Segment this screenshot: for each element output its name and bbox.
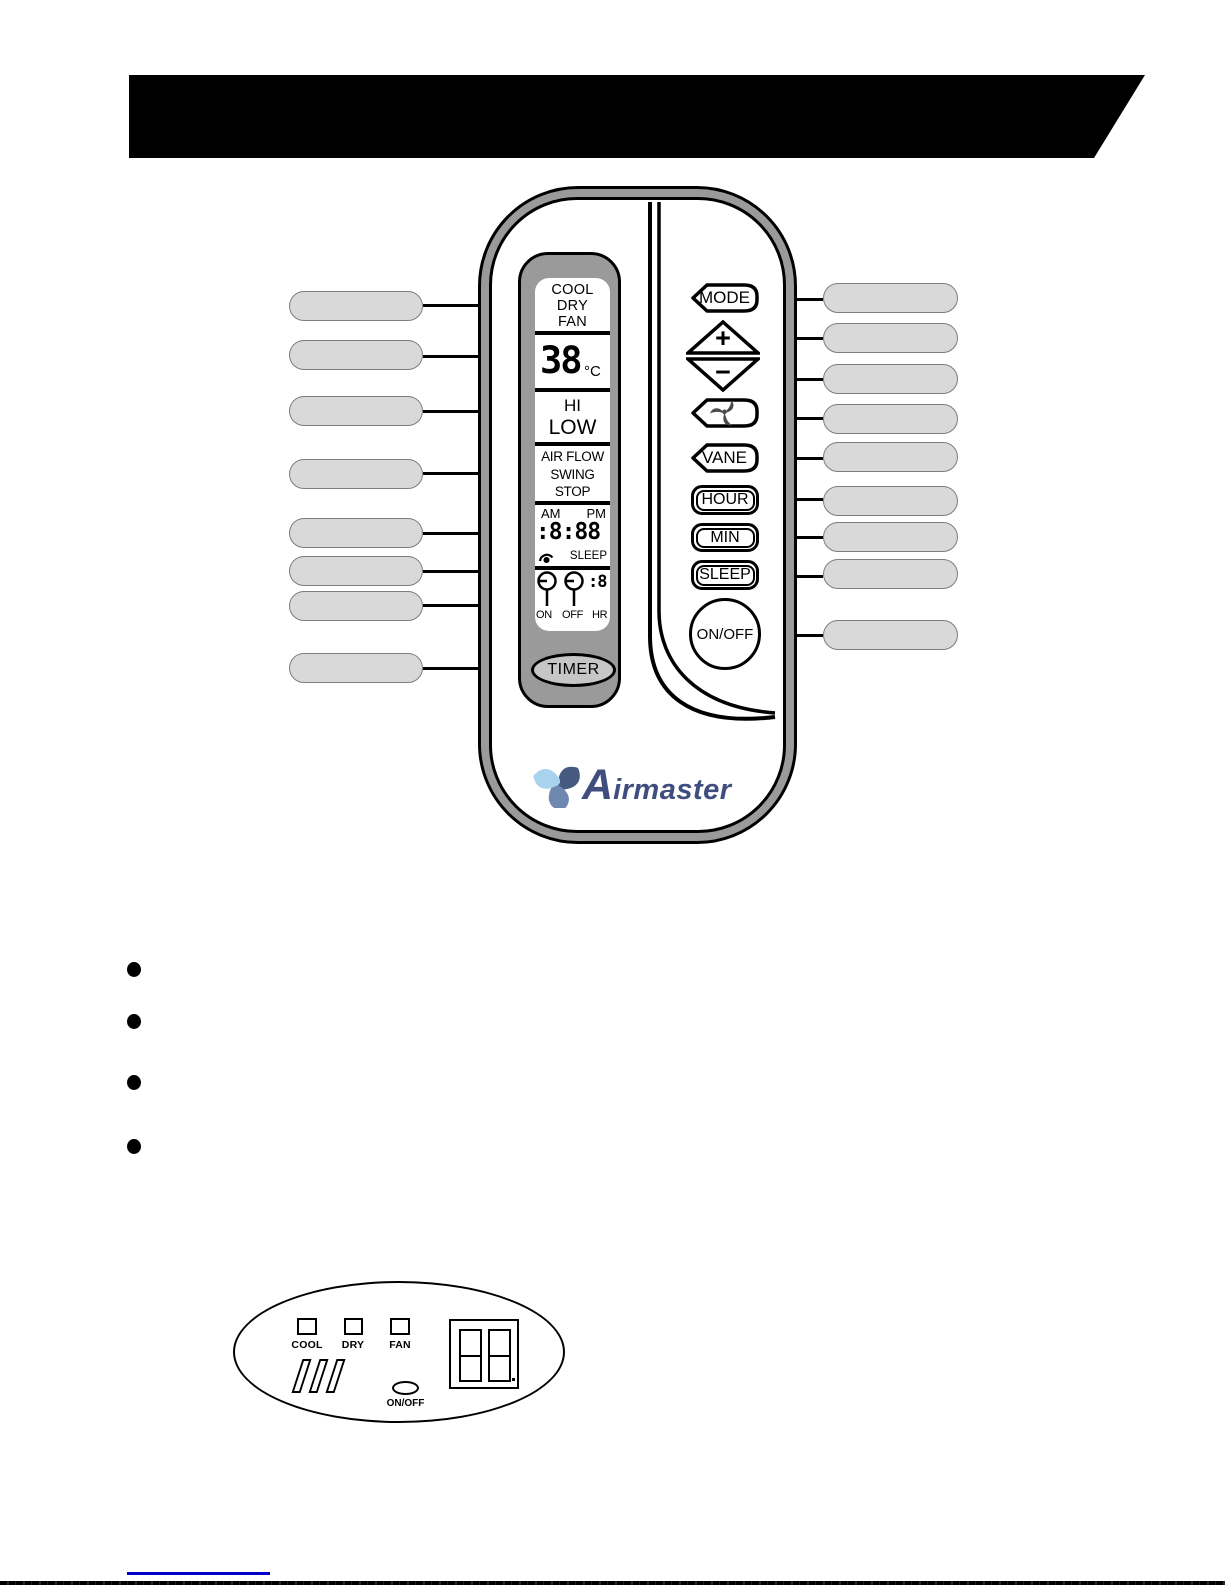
airmaster-swirl-icon (533, 762, 583, 808)
callout-box (289, 291, 423, 321)
temperature-value: 38 (540, 342, 581, 379)
logo-rest: irmaster (613, 774, 731, 806)
vane-button: VANE (690, 443, 759, 473)
callout-box (289, 591, 423, 621)
callout-line (797, 417, 823, 420)
title-banner (129, 75, 1145, 158)
callout-line (797, 536, 823, 539)
bullet-dot (127, 1075, 141, 1090)
vane-button-label: VANE (690, 443, 759, 473)
callout-line (423, 604, 478, 607)
airflow-label: AIR FLOW (535, 448, 610, 466)
bullet-dot (127, 1139, 141, 1154)
page-bottom-edge (0, 1581, 1225, 1585)
seven-segment-display (449, 1319, 519, 1389)
callout-line (423, 304, 478, 307)
hour-button-label: HOUR (696, 490, 755, 511)
remote-control-diagram: COOL DRY FAN 38 °C HI LOW AIR FLOW SWING… (478, 186, 797, 844)
footer-link-line (127, 1572, 270, 1575)
callout-box (289, 653, 423, 683)
panel-on-off-button (392, 1381, 419, 1395)
timer-hr-label: HR (592, 609, 607, 621)
lcd-fan-speed: HI LOW (535, 392, 610, 442)
fan-indicator-lamp (390, 1318, 410, 1335)
callout-line (797, 498, 823, 501)
callout-box (823, 559, 958, 589)
fan-speed-low: LOW (535, 416, 610, 440)
callout-box (823, 620, 958, 650)
temp-up-down-button: + − (686, 320, 760, 392)
fan-speed-hi: HI (535, 396, 610, 416)
indicator-panel-diagram: COOL DRY FAN ON/OFF (233, 1281, 565, 1423)
on-off-button-label: ON/OFF (697, 626, 754, 643)
callout-box (823, 404, 958, 434)
louver-slash (325, 1359, 345, 1393)
callout-box (823, 364, 958, 394)
min-button: MIN (691, 523, 759, 552)
airflow-stop: STOP (535, 483, 610, 501)
callout-box (823, 323, 958, 353)
timer-off-label: OFF (562, 609, 583, 621)
callout-line (423, 667, 478, 670)
callout-box (823, 442, 958, 472)
louver-slash (291, 1359, 311, 1393)
timer-button: TIMER (531, 653, 616, 687)
lcd-divider (535, 442, 610, 446)
minus-button-label: − (686, 358, 760, 386)
timer-hour-digit: :8 (588, 572, 606, 592)
lcd-mode-dry: DRY (535, 298, 610, 314)
callout-line (797, 634, 823, 637)
clock-digits: :8:88 (535, 519, 601, 545)
hour-button: HOUR (691, 485, 759, 515)
plus-button-label: + (686, 324, 760, 352)
timer-button-label: TIMER (547, 661, 599, 679)
callout-box (289, 518, 423, 548)
sleep-indicator-icon (538, 551, 555, 564)
sleep-button-label: SLEEP (696, 565, 755, 586)
fan-speed-button (690, 398, 759, 430)
airflow-swing: SWING (535, 466, 610, 484)
callout-box (289, 340, 423, 370)
airmaster-wordmark: Airmaster (582, 760, 762, 810)
lcd-panel: COOL DRY FAN 38 °C HI LOW AIR FLOW SWING… (518, 252, 621, 708)
lcd-timer-section: :8 ON OFF HR (535, 566, 610, 631)
display-digit (459, 1329, 482, 1382)
fan-icon (690, 398, 759, 428)
lcd-clock: AM PM :8:88 SLEEP (535, 501, 610, 566)
sleep-indicator-label: SLEEP (570, 550, 607, 562)
logo-initial: A (582, 761, 613, 809)
fan-lamp-label: FAN (376, 1339, 424, 1351)
callout-line (423, 532, 478, 535)
sleep-button: SLEEP (691, 560, 759, 590)
cool-lamp-label: COOL (283, 1339, 331, 1351)
panel-on-off-label: ON/OFF (373, 1398, 438, 1409)
callout-line (797, 378, 823, 381)
on-off-button: ON/OFF (689, 598, 761, 670)
timer-off-clock-icon (563, 571, 587, 607)
louver-slash (308, 1359, 328, 1393)
timer-on-label: ON (536, 609, 552, 621)
callout-box (289, 459, 423, 489)
lcd-airflow: AIR FLOW SWING STOP (535, 448, 610, 501)
bullet-dot (127, 962, 141, 977)
manual-page: COOL DRY FAN 38 °C HI LOW AIR FLOW SWING… (0, 0, 1225, 1585)
mode-button: MODE (690, 283, 759, 313)
callout-box (823, 522, 958, 552)
callout-line (797, 457, 823, 460)
callout-box (823, 486, 958, 516)
callout-box (823, 283, 958, 313)
callout-line (797, 298, 823, 301)
callout-line (423, 472, 478, 475)
lcd-display: COOL DRY FAN 38 °C HI LOW AIR FLOW SWING… (535, 278, 610, 631)
callout-line (423, 410, 478, 413)
callout-line (423, 570, 478, 573)
callout-box (289, 556, 423, 586)
display-digit (488, 1329, 511, 1382)
lcd-mode-cool: COOL (535, 282, 610, 298)
lcd-mode-fan: FAN (535, 314, 610, 330)
callout-line (797, 575, 823, 578)
temperature-unit: °C (584, 363, 601, 380)
min-button-label: MIN (696, 528, 755, 548)
display-dot (512, 1378, 515, 1381)
timer-on-clock-icon (536, 571, 560, 607)
lcd-temperature: 38 °C (535, 335, 610, 388)
callout-box (289, 396, 423, 426)
lcd-mode-indicators: COOL DRY FAN (535, 282, 610, 331)
cool-indicator-lamp (297, 1318, 317, 1335)
callout-line (423, 355, 478, 358)
mode-button-label: MODE (690, 283, 759, 313)
callout-line (797, 337, 823, 340)
bullet-dot (127, 1014, 141, 1029)
dry-indicator-lamp (344, 1318, 363, 1335)
dry-lamp-label: DRY (329, 1339, 377, 1351)
